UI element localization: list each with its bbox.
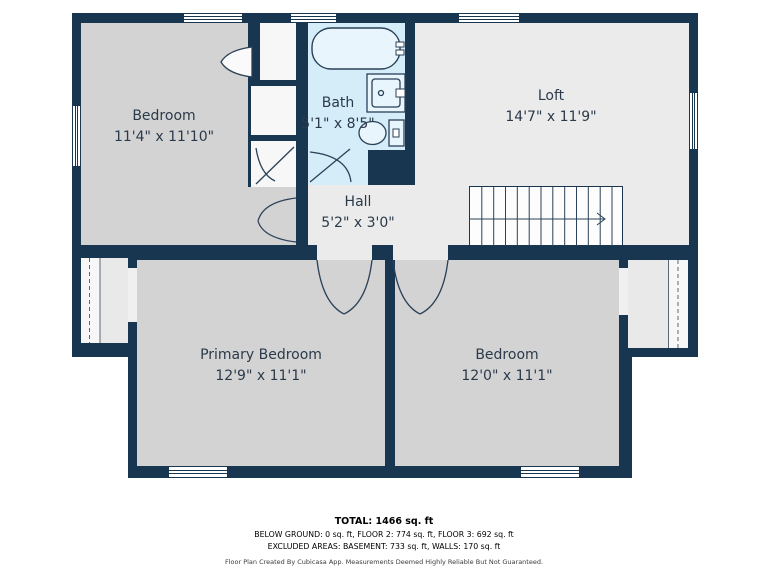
room-name: Hall [321, 192, 394, 213]
wall [248, 86, 251, 187]
room-label-bedroom-lower: Bedroom 12'0" x 11'1" [461, 345, 552, 387]
staircase [469, 186, 623, 245]
room-dims: 14'7" x 11'9" [505, 107, 596, 128]
wall [248, 23, 260, 80]
room-floor-bedroom-upper [248, 187, 296, 245]
window [183, 13, 243, 23]
room-dims: 11'4" x 11'10" [114, 127, 214, 148]
room-name: Loft [505, 86, 596, 107]
excluded-areas-text: EXCLUDED AREAS: BASEMENT: 733 sq. ft, WA… [0, 542, 768, 551]
room-dims: 5'2" x 3'0" [321, 213, 394, 234]
closet-opening [619, 268, 628, 315]
room-label-hall: Hall 5'2" x 3'0" [321, 192, 394, 234]
room-dims: 5'1" x 8'5" [301, 114, 374, 135]
room-label-primary-bedroom: Primary Bedroom 12'9" x 11'1" [200, 345, 322, 387]
wall [368, 150, 415, 185]
disclaimer-text: Floor Plan Created By Cubicasa App. Meas… [0, 558, 768, 566]
window [290, 13, 337, 23]
door-opening [393, 245, 448, 260]
total-area-text: TOTAL: 1466 sq. ft [0, 516, 768, 527]
window [168, 466, 228, 478]
floor-plan-canvas: Bedroom 11'4" x 11'10" Bath 5'1" x 8'5" … [0, 0, 768, 576]
room-label-bedroom-upper: Bedroom 11'4" x 11'10" [114, 106, 214, 148]
room-label-bath: Bath 5'1" x 8'5" [301, 93, 374, 135]
closet-floor [100, 258, 128, 343]
window [458, 13, 520, 23]
room-dims: 12'0" x 11'1" [461, 366, 552, 387]
closet-floor [260, 23, 296, 80]
closet-opening [128, 268, 137, 322]
room-label-loft: Loft 14'7" x 11'9" [505, 86, 596, 128]
room-dims: 12'9" x 11'1" [200, 366, 322, 387]
closet-floor [251, 86, 296, 135]
door-opening [317, 245, 372, 260]
room-name: Bath [301, 93, 374, 114]
window [520, 466, 580, 478]
window [72, 105, 81, 167]
room-name: Bedroom [461, 345, 552, 366]
floor-areas-text: BELOW GROUND: 0 sq. ft, FLOOR 2: 774 sq.… [0, 530, 768, 539]
room-name: Bedroom [114, 106, 214, 127]
window [689, 92, 698, 150]
closet-floor [628, 260, 668, 348]
room-name: Primary Bedroom [200, 345, 322, 366]
closet-floor [251, 141, 296, 187]
room-floor-bath [308, 150, 368, 185]
